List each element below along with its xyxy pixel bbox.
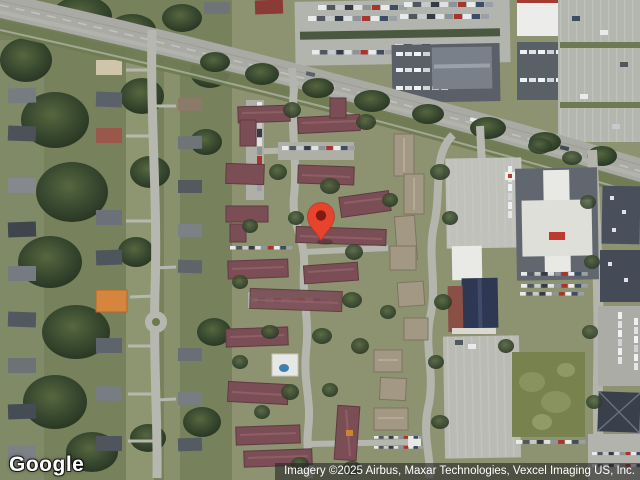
rooftop-sign bbox=[549, 232, 565, 240]
white-building bbox=[517, 0, 561, 36]
pool bbox=[279, 364, 289, 372]
marker-dot bbox=[316, 210, 326, 220]
orange-roof-house bbox=[96, 290, 127, 312]
marker-shadow bbox=[317, 239, 333, 245]
hip-roof-building bbox=[597, 391, 640, 432]
satellite-imagery bbox=[0, 0, 640, 480]
map-canvas[interactable]: Google Imagery ©2025 Airbus, Maxar Techn… bbox=[0, 0, 640, 480]
google-logo[interactable]: Google bbox=[9, 453, 84, 477]
imagery-attribution: Imagery ©2025 Airbus, Maxar Technologies… bbox=[275, 463, 640, 480]
